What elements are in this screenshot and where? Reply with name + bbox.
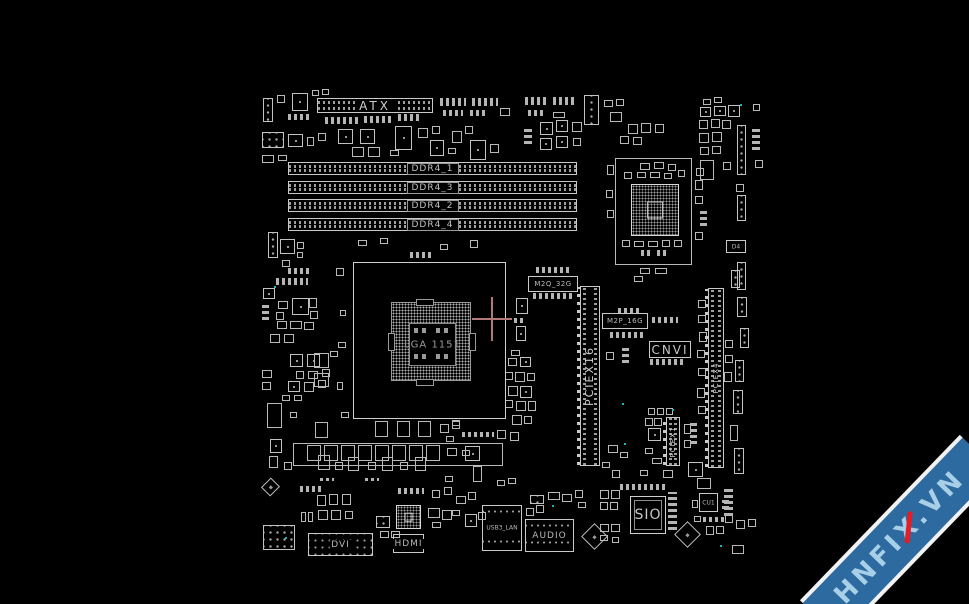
smd-component [456,496,466,504]
smd-component [572,122,582,132]
smd-component [620,136,629,144]
ddr4-slot-3-label: DDR4_3 [406,182,458,194]
smd-component [634,276,643,282]
usb3-lan-connector[interactable]: USB3_LAN [482,505,522,551]
socket-pad-row [414,328,430,333]
smd-component [734,448,744,474]
sio-chip-label: SIO [634,507,661,523]
smd-component [520,357,531,367]
smd-component [338,129,353,144]
smd-component [505,400,513,408]
smd-component [575,490,583,498]
atx-connector[interactable]: ATX [317,98,433,113]
smd-component [380,531,389,538]
smd-component [262,382,271,390]
smd-component [296,371,304,379]
smd-component [700,147,709,155]
smd-component [368,147,380,157]
smd-component [610,112,622,122]
smd-component [277,321,287,329]
hdmi-connector[interactable]: HDMI [393,534,424,553]
ddr4-slot-4[interactable]: DDR4_4 [288,218,577,231]
smd-component [516,326,526,341]
smd-component [620,484,665,490]
smd-component [336,268,344,276]
smd-component [440,98,466,106]
smd-component [345,511,353,519]
smd-component [301,512,306,522]
mounting-hole [674,521,701,548]
smd-component [505,372,513,380]
smd-component [737,195,746,221]
highlighted-pin [285,537,287,539]
smd-component [748,519,756,527]
smd-component [432,522,441,528]
boardview-window: ATXDDR4_1DDR4_3DDR4_2DDR4_4M2Q_32GM2P_16… [0,0,969,604]
hdmi-connector-label: HDMI [392,539,424,549]
cu1-chip-label: CU1 [702,499,714,506]
smd-component [611,490,620,499]
smd-component [318,510,328,520]
smd-component [606,190,613,198]
smd-component [442,510,452,520]
smd-component [556,120,568,132]
smd-component [392,445,406,461]
smd-component [278,155,287,161]
smd-component [270,439,282,453]
smd-component [607,210,614,218]
highlighted-pin [552,505,554,507]
smd-component [650,172,660,178]
d4-part-label: D4 [732,243,740,250]
cpu-socket-label: LGA 1151 [404,339,461,350]
smd-component [462,450,470,456]
smd-component [622,345,629,363]
smd-component [426,445,440,461]
smd-component [516,298,528,314]
smd-component [290,412,297,418]
smd-component [322,89,329,95]
smd-component [536,267,572,273]
smd-component [331,510,341,520]
smd-component [510,432,519,441]
smd-component [648,428,661,441]
smd-component [262,132,284,148]
smd-component [650,359,684,365]
smd-component [282,260,290,267]
smd-component [497,480,505,486]
smd-component [415,457,426,471]
smd-component [440,244,448,250]
smd-component [703,99,711,105]
smd-component [514,318,524,323]
m2p-16g-connector[interactable]: M2P_16G [602,313,648,329]
smd-component [703,517,725,522]
smd-component [465,514,477,527]
smd-component [663,470,673,478]
smd-component [740,328,749,348]
smd-component [432,126,440,134]
audio-connector-label: AUDIO [530,531,568,541]
smd-component [511,350,520,356]
pciex16-slot[interactable]: PCIEX16 [580,286,600,466]
smd-component [573,138,581,146]
mounting-hole [261,477,280,496]
smd-component [724,372,732,382]
pciex1-slot-label: PCIEX1 [668,422,678,461]
smd-component [730,425,738,441]
cnvi-connector[interactable]: CNVI [649,341,691,358]
smd-component [697,478,711,489]
smd-component [641,123,651,133]
pciex1-slot[interactable]: PCIEX1 [666,417,680,466]
smd-component [268,232,278,258]
smd-component [753,104,760,111]
cpu-socket[interactable]: LGA 1151 [353,262,506,419]
smd-component [418,128,428,138]
smd-component [655,124,664,133]
socket-pad-row [436,328,448,333]
smd-component [348,457,359,471]
smd-component [712,146,721,154]
smd-component [397,421,410,437]
ddr4-slot-3[interactable]: DDR4_3 [288,181,577,194]
smd-component [337,382,343,390]
smd-component [470,240,478,248]
smd-component [465,126,473,134]
smd-component [612,470,620,478]
smd-component [432,490,440,498]
smd-component [468,492,476,500]
smd-component [737,297,747,317]
socket-notch [388,333,395,351]
smd-component [304,322,314,330]
smd-component [440,424,449,433]
smd-component [525,97,549,105]
smd-component [584,95,599,125]
smd-component [410,252,434,258]
smd-component [368,462,376,470]
smd-component [714,106,726,116]
smd-component [530,495,544,504]
smd-component [633,137,642,145]
ddr4-slot-2-label: DDR4_2 [406,200,458,212]
smd-component [262,370,272,378]
smd-component [290,354,303,367]
smd-component [497,430,506,439]
pciex4-slot-label: PCIEX4 [711,359,721,398]
smd-component [318,133,326,141]
smd-component [700,107,711,117]
smd-component [365,478,379,481]
smd-component [733,390,743,414]
boardview-canvas[interactable]: ATXDDR4_1DDR4_3DDR4_2DDR4_4M2Q_32GM2P_16… [0,0,969,604]
smd-component [448,148,456,154]
socket-pad-row [436,354,448,359]
smd-component [657,250,669,256]
smd-component [398,488,424,494]
smd-component [398,114,422,121]
smd-component [695,180,703,190]
smd-component [711,119,720,128]
smd-component [445,476,453,482]
smd-component [325,117,359,124]
smd-component [508,386,518,396]
cnvi-connector-label: CNVI [651,343,688,357]
smd-component [578,502,586,508]
smd-component [314,373,329,387]
smd-component [267,403,282,428]
ddr4-slot-2[interactable]: DDR4_2 [288,199,577,212]
smd-component [731,270,740,288]
pciex16-slot-label: PCIEX16 [585,342,595,410]
smd-component [620,452,628,458]
smd-component [490,144,499,153]
smd-component [520,386,532,398]
smd-component [553,112,565,118]
smd-component [706,526,714,535]
smd-component [692,500,698,508]
smd-component [540,122,553,135]
smd-component [294,395,302,401]
smd-component [655,268,667,274]
smd-component [652,458,662,464]
pciex4-slot[interactable]: PCIEX4 [708,288,724,468]
smd-component [694,516,701,522]
smd-component [472,98,498,106]
smd-component [262,155,274,163]
smd-component [338,342,346,348]
m2q-32g-connector[interactable]: M2Q_32G [528,276,578,292]
d4-part[interactable]: D4 [726,240,746,253]
smd-component [725,355,733,363]
smd-component [288,114,312,120]
smd-component [335,462,343,470]
smd-component [364,116,394,123]
smd-component [376,516,390,528]
socket-notch [416,379,434,386]
smd-component [640,470,648,476]
smd-component [645,418,653,426]
smd-component [307,137,314,146]
smd-component [654,162,664,169]
smd-component [382,457,393,471]
smd-component [300,486,322,492]
smd-component [297,252,303,258]
smd-component [452,131,462,143]
smd-component [292,298,309,315]
smd-component [262,302,269,320]
smd-component [732,545,744,554]
smd-component [304,382,314,392]
smd-component [278,301,288,309]
cpu-pin-grid: LGA 1151 [391,302,471,381]
smd-component [375,421,388,437]
smd-component [668,164,676,171]
smd-component [269,456,278,468]
smd-component [318,455,330,470]
smd-component [508,358,517,366]
smd-component [548,492,560,500]
smd-component [396,505,421,529]
smd-component [690,420,697,444]
smd-component [716,526,724,534]
highlighted-pin [274,286,276,288]
smd-component [310,311,318,319]
audio-connector[interactable]: AUDIO [525,519,574,552]
smd-component [446,436,454,442]
smd-component [607,165,614,175]
smd-component [470,140,486,160]
smd-component [722,120,731,129]
usb3-lan-connector-label: USB3_LAN [486,525,517,532]
smd-component [528,110,546,116]
smd-component [674,240,682,247]
smd-component [428,508,440,518]
smd-component [631,184,679,236]
smd-component [288,134,303,147]
smd-component [452,510,460,516]
smd-component [624,172,632,179]
smd-component [536,505,544,513]
smd-component [284,334,294,343]
smd-component [317,495,326,506]
smd-component [604,100,613,107]
cu1-chip[interactable]: CU1 [699,493,718,512]
smd-component [309,298,317,308]
smd-component [524,128,532,144]
smd-component [297,242,304,249]
smd-component [329,494,338,505]
smd-component [600,535,608,541]
smd-component [292,93,308,111]
smd-component [276,312,284,320]
smd-component [528,401,536,411]
smd-component [380,238,388,244]
smd-component [320,478,334,481]
smd-component [712,132,722,142]
dvi-connector-label: DVI [329,540,352,550]
smd-component [600,490,609,499]
sio-chip[interactable]: SIO [630,496,666,534]
smd-component [282,395,290,401]
smd-component [752,128,760,150]
smd-component [395,126,412,150]
smd-component [443,110,463,116]
smd-component [610,502,618,510]
smd-component [645,448,653,454]
smd-component [312,90,319,96]
smd-component [288,381,300,392]
smd-component [400,462,408,470]
smd-component [527,373,535,381]
smd-component [540,138,552,150]
smd-component [697,350,705,358]
smd-component [340,310,346,316]
smd-component [526,508,534,516]
highlighted-pin [672,409,674,411]
smd-component [641,250,653,256]
smd-component [330,351,338,357]
smd-component [755,160,763,168]
smd-component [263,288,275,299]
smd-component [600,524,609,532]
smd-component [308,512,313,522]
smd-component [462,432,494,437]
smd-component [342,494,351,505]
smd-component [699,120,708,129]
smd-component [358,240,367,246]
smd-component [696,168,704,176]
smd-component [447,448,457,456]
socket-center-cavity: LGA 1151 [409,323,456,366]
smd-component [640,163,650,170]
smd-component [284,462,292,470]
smd-component [390,150,399,156]
smd-component [562,494,572,502]
smd-component [648,241,658,247]
smd-component [508,478,516,484]
smd-component [714,97,722,103]
smd-component [556,136,568,148]
smd-component [622,240,630,247]
smd-component [736,520,745,529]
smd-component [695,196,703,204]
ddr4-slot-1[interactable]: DDR4_1 [288,162,577,175]
smd-component [652,317,678,323]
smd-component [515,372,525,382]
smd-component [648,408,655,415]
socket-notch [469,333,476,351]
smd-component [288,268,310,274]
smd-component [314,353,329,368]
smd-component [664,173,672,179]
smd-component [512,415,522,425]
highlighted-pin [740,104,742,106]
highlighted-pin [624,443,626,445]
smd-component [735,360,744,382]
smd-component [699,133,709,143]
smd-component [728,105,740,117]
smd-component [270,334,280,343]
smd-component [610,332,644,338]
smd-component [628,124,638,134]
smd-component [736,184,744,192]
crosshair-cursor-horizontal [472,318,512,320]
smd-component [725,515,733,523]
dvi-connector[interactable]: DVI [308,533,373,556]
smd-component [533,293,573,299]
smd-component [315,422,328,438]
ddr4-slot-4-label: DDR4_4 [406,219,458,231]
smd-component [263,98,273,122]
smd-component [737,125,746,175]
smd-component [470,110,486,116]
smd-component [657,408,664,415]
smd-component [600,502,608,510]
smd-component [444,487,452,495]
smd-component [277,95,285,103]
smd-component [500,108,510,116]
smd-component [608,445,618,453]
smd-component [612,537,619,543]
m2q-32g-connector-label: M2Q_32G [534,280,571,288]
smd-component [634,241,644,247]
smd-component [452,421,460,429]
smd-component [602,462,610,468]
smd-component [606,352,614,360]
smd-component [611,524,620,532]
